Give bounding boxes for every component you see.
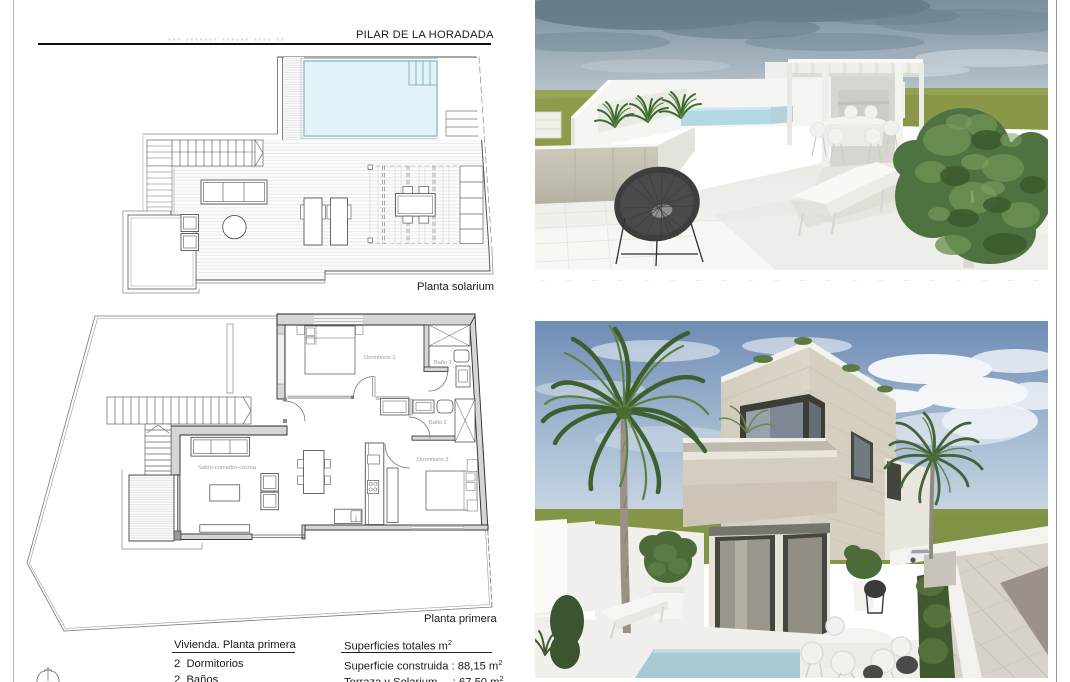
svg-text:Dormitorio 2: Dormitorio 2 (417, 457, 449, 463)
svg-text:Salón-comedor-cocina: Salón-comedor-cocina (198, 465, 257, 471)
svg-text:Baño 1: Baño 1 (434, 360, 452, 366)
svg-text:Baño 2: Baño 2 (429, 420, 447, 426)
svg-text:Dormitorio 1: Dormitorio 1 (364, 355, 396, 361)
svg-text:Planta primera: Planta primera (424, 613, 498, 625)
